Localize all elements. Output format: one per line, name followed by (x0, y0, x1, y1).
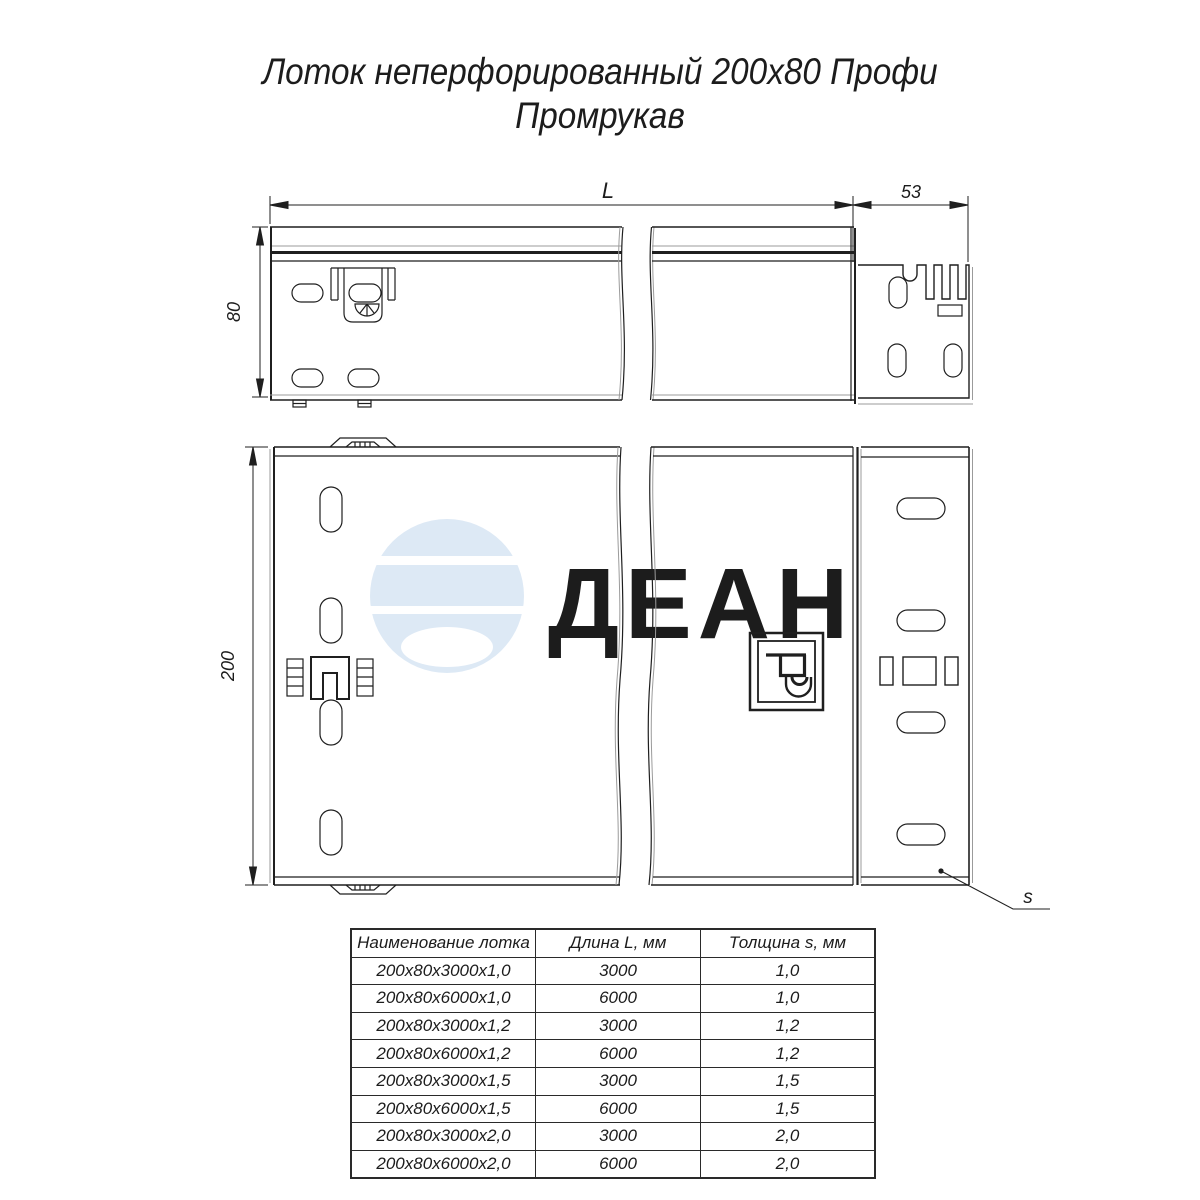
table-row: 200x80x3000x1,0 3000 1,0 (351, 957, 875, 985)
dimension-53: 53 (853, 182, 968, 262)
table-cell: 6000 (536, 1040, 701, 1068)
table-cell: 3000 (536, 957, 701, 985)
latch-bump-bottom (330, 885, 396, 894)
globe-icon (368, 518, 526, 675)
dim-label-s: s (1023, 887, 1033, 908)
table-cell: 200x80x3000x2,0 (351, 1123, 536, 1151)
table-cell: 6000 (536, 985, 701, 1013)
table-cell: 3000 (536, 1123, 701, 1151)
table-header-row: Наименование лотка Длина L, мм Толщина s… (351, 929, 875, 957)
latch-clip-detail (331, 268, 395, 322)
stamped-rib-detail (287, 657, 373, 699)
table-row: 200x80x6000x2,0 6000 2,0 (351, 1150, 875, 1178)
table-cell: 200x80x6000x1,5 (351, 1095, 536, 1123)
dim-label-80: 80 (224, 302, 244, 322)
table-cell: 3000 (536, 1012, 701, 1040)
table-cell: 200x80x6000x1,2 (351, 1040, 536, 1068)
latch-bump-top (330, 438, 396, 447)
dimension-200: 200 (218, 447, 268, 885)
table-cell: 1,0 (701, 985, 876, 1013)
col-header-name: Наименование лотка (351, 929, 536, 957)
table-row: 200x80x6000x1,0 6000 1,0 (351, 985, 875, 1013)
dimension-80: 80 (224, 227, 268, 397)
table-row: 200x80x3000x2,0 3000 2,0 (351, 1123, 875, 1151)
drawing-page: Лоток неперфорированный 200х80 Профи Про… (0, 0, 1200, 1200)
thickness-leader: s (938, 868, 1050, 909)
dim-label-L: L (602, 178, 614, 203)
table-cell: 2,0 (701, 1123, 876, 1151)
side-view-connector (858, 265, 973, 404)
table-row: 200x80x6000x1,2 6000 1,2 (351, 1040, 875, 1068)
dim-label-200: 200 (218, 651, 238, 682)
table-cell: 2,0 (701, 1150, 876, 1178)
side-view (270, 227, 973, 407)
table-cell: 200x80x6000x2,0 (351, 1150, 536, 1178)
size-table: Наименование лотка Длина L, мм Толщина s… (350, 928, 876, 1179)
table-row: 200x80x3000x1,2 3000 1,2 (351, 1012, 875, 1040)
col-header-thickness: Толщина s, мм (701, 929, 876, 957)
table-cell: 1,0 (701, 957, 876, 985)
plan-view (270, 438, 973, 894)
table-cell: 1,2 (701, 1040, 876, 1068)
table-cell: 1,5 (701, 1067, 876, 1095)
dim-label-53: 53 (901, 182, 921, 202)
table-cell: 1,5 (701, 1095, 876, 1123)
table-cell: 200x80x3000x1,5 (351, 1067, 536, 1095)
col-header-length: Длина L, мм (536, 929, 701, 957)
watermark-text: ДЕАН (548, 548, 854, 660)
table-cell: 3000 (536, 1067, 701, 1095)
dimension-L: L (270, 178, 853, 262)
table-cell: 6000 (536, 1095, 701, 1123)
watermark: ДЕАН (368, 518, 854, 675)
table-cell: 200x80x3000x1,0 (351, 957, 536, 985)
table-cell: 200x80x6000x1,0 (351, 985, 536, 1013)
table-row: 200x80x6000x1,5 6000 1,5 (351, 1095, 875, 1123)
table-cell: 200x80x3000x1,2 (351, 1012, 536, 1040)
table-cell: 1,2 (701, 1012, 876, 1040)
table-cell: 6000 (536, 1150, 701, 1178)
bottom-tabs (293, 400, 371, 407)
table-row: 200x80x3000x1,5 3000 1,5 (351, 1067, 875, 1095)
plan-view-connector (861, 447, 973, 885)
